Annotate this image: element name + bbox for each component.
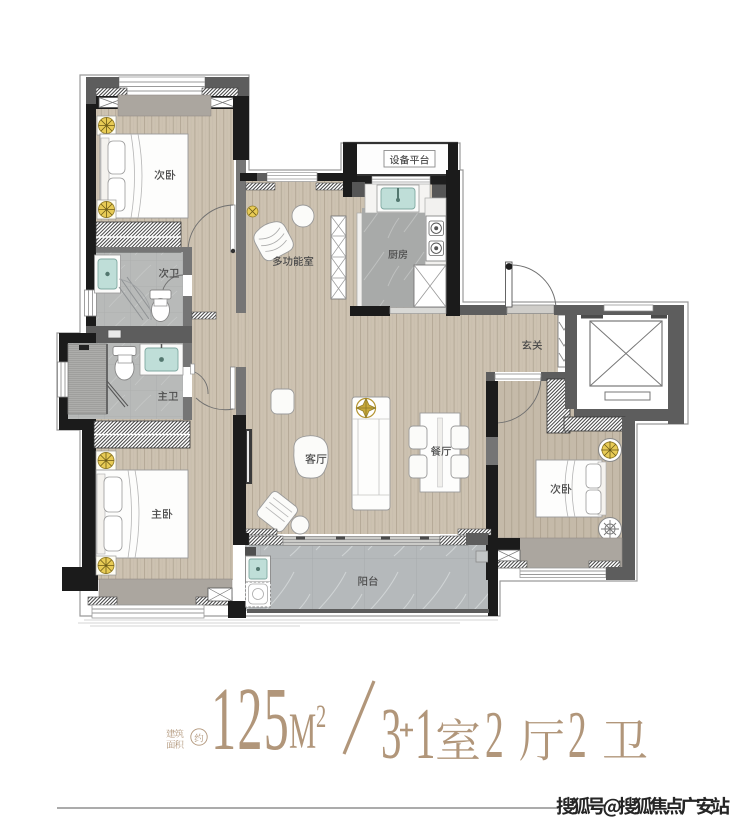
svg-text:M: M — [289, 704, 316, 760]
svg-text:2: 2 — [568, 698, 587, 772]
svg-text:3: 3 — [381, 693, 401, 774]
svg-text:1: 1 — [415, 693, 435, 774]
svg-text:2: 2 — [316, 698, 326, 734]
svg-text:125: 125 — [211, 669, 290, 769]
svg-text:2: 2 — [485, 698, 504, 772]
